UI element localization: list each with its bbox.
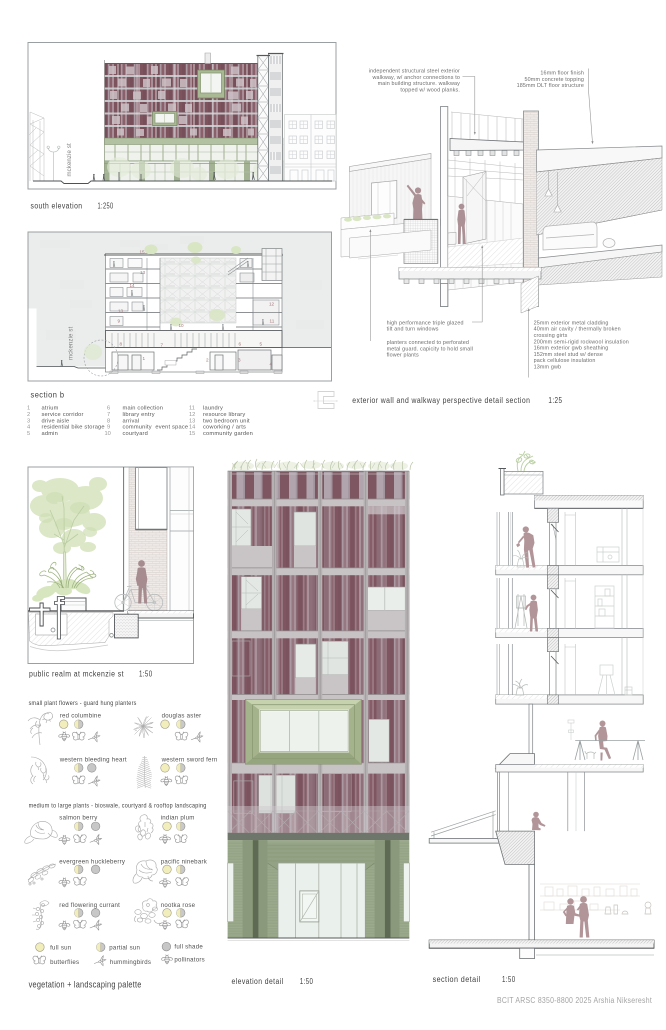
svg-text:185mm DLT floor structure: 185mm DLT floor structure (517, 83, 584, 89)
svg-text:14: 14 (130, 283, 136, 288)
svg-text:atrium: atrium (42, 406, 59, 412)
svg-text:section detail: section detail (433, 975, 481, 984)
svg-text:service corridor: service corridor (42, 412, 84, 418)
svg-text:douglas aster: douglas aster (162, 713, 202, 720)
svg-text:library entry: library entry (123, 412, 155, 418)
svg-text:16mm exterior gwb sheathing: 16mm exterior gwb sheathing (534, 346, 609, 352)
svg-text:small plant flowers - guard hu: small plant flowers - guard hung planter… (29, 700, 137, 707)
svg-text:partial sun: partial sun (109, 945, 140, 952)
svg-text:12: 12 (269, 302, 275, 307)
svg-text:11: 11 (270, 319, 275, 324)
svg-text:1:25: 1:25 (548, 396, 562, 405)
svg-text:red flowering currant: red flowering currant (59, 902, 120, 909)
svg-text:10: 10 (179, 323, 185, 328)
svg-text:3: 3 (27, 418, 30, 424)
svg-text:6: 6 (107, 406, 110, 412)
svg-text:16mm floor finish: 16mm floor finish (540, 71, 584, 77)
svg-text:1: 1 (27, 406, 30, 412)
svg-text:pollinators: pollinators (174, 957, 205, 964)
svg-text:main building structure. walkw: main building structure. walkway (378, 81, 461, 87)
svg-text:pack cellulose insulation: pack cellulose insulation (534, 358, 596, 364)
svg-text:resource library: resource library (203, 412, 245, 418)
svg-text:western sword fern: western sword fern (161, 757, 218, 764)
svg-text:mckenzie st: mckenzie st (67, 143, 73, 177)
svg-text:8: 8 (107, 418, 110, 424)
svg-text:7: 7 (107, 412, 110, 418)
svg-text:community event space: community event space (123, 425, 189, 431)
svg-text:evergreen huckleberry: evergreen huckleberry (59, 858, 126, 865)
svg-text:admin: admin (42, 431, 59, 437)
svg-text:section b: section b (31, 391, 65, 400)
svg-text:50mm concrete topping: 50mm concrete topping (525, 77, 584, 83)
svg-text:flower plants: flower plants (387, 353, 419, 359)
svg-text:public realm at mckenzie st: public realm at mckenzie st (29, 670, 124, 679)
svg-text:1:250: 1:250 (98, 202, 114, 211)
svg-text:butterflies: butterflies (50, 959, 79, 966)
svg-text:two bedroom unit: two bedroom unit (203, 418, 250, 424)
svg-text:13: 13 (189, 418, 195, 424)
svg-text:salmon berry: salmon berry (59, 815, 98, 822)
svg-text:13: 13 (118, 309, 124, 314)
svg-text:elevation detail: elevation detail (232, 977, 284, 986)
svg-text:13mm gwb: 13mm gwb (534, 365, 562, 371)
svg-text:4: 4 (27, 425, 30, 431)
svg-text:14: 14 (189, 425, 195, 431)
svg-text:high performance triple glazed: high performance triple glazed (387, 320, 464, 326)
svg-text:courtyard: courtyard (123, 431, 149, 437)
svg-text:pacific ninebark: pacific ninebark (161, 858, 208, 865)
svg-text:full shade: full shade (174, 943, 203, 950)
svg-text:25mm exterior metal cladding: 25mm exterior metal cladding (534, 320, 609, 326)
svg-text:2: 2 (27, 412, 30, 418)
svg-text:community garden: community garden (203, 431, 253, 437)
svg-text:200mm semi-rigid rockwool insu: 200mm semi-rigid rockwool insulation (534, 339, 629, 345)
svg-text:walkway, w/ anchor connections: walkway, w/ anchor connections to (371, 75, 460, 81)
svg-text:vegetation + landscaping palet: vegetation + landscaping palette (29, 980, 142, 991)
svg-text:15: 15 (189, 431, 195, 437)
svg-text:11: 11 (189, 406, 195, 412)
svg-text:4: 4 (270, 362, 273, 367)
svg-text:independent structural steel e: independent structural steel exterior (369, 69, 460, 75)
svg-text:tilt and turn windows: tilt and turn windows (387, 327, 439, 333)
svg-text:planters connected to perforat: planters connected to perforated (387, 340, 469, 346)
svg-text:full sun: full sun (50, 945, 71, 952)
svg-text:8: 8 (120, 342, 123, 347)
svg-text:3: 3 (238, 358, 241, 363)
svg-text:crossing girts: crossing girts (534, 333, 568, 339)
svg-text:residential bike storage: residential bike storage (42, 425, 105, 431)
svg-text:5: 5 (260, 342, 263, 347)
svg-text:nootka rose: nootka rose (161, 902, 196, 909)
svg-text:indian plum: indian plum (161, 815, 195, 822)
svg-text:medium to large plants - biosw: medium to large plants - bioswale, court… (29, 803, 207, 810)
svg-text:coworking / arts: coworking / arts (203, 425, 246, 431)
svg-text:drive aisle: drive aisle (42, 418, 70, 424)
svg-text:arrival: arrival (123, 418, 140, 424)
svg-text:metal guard. capicity to hold: metal guard. capicity to hold small (387, 346, 473, 352)
svg-text:12: 12 (189, 412, 195, 418)
svg-text:1:50: 1:50 (502, 975, 516, 984)
svg-text:laundry: laundry (203, 406, 223, 412)
svg-text:15: 15 (140, 250, 146, 255)
svg-text:topped w/ wood planks.: topped w/ wood planks. (400, 87, 460, 93)
svg-text:13: 13 (140, 270, 146, 275)
svg-text:9: 9 (118, 319, 121, 324)
svg-text:red columbine: red columbine (60, 713, 102, 720)
svg-text:BCIT ARSC 8350-8800 2025 Arshi: BCIT ARSC 8350-8800 2025 Arshia Nikseres… (497, 996, 652, 1005)
svg-text:hummingbirds: hummingbirds (110, 959, 151, 966)
svg-text:9: 9 (107, 425, 110, 431)
svg-text:10: 10 (105, 431, 111, 437)
svg-text:main collection: main collection (123, 406, 164, 412)
svg-text:western bleeding heart: western bleeding heart (59, 757, 127, 764)
svg-text:south elevation: south elevation (31, 202, 83, 211)
svg-text:1:50: 1:50 (139, 670, 153, 679)
svg-text:6: 6 (239, 342, 242, 347)
svg-text:1: 1 (143, 356, 146, 361)
svg-text:exterior wall and walkway pers: exterior wall and walkway perspective de… (352, 396, 530, 405)
svg-text:2: 2 (206, 358, 209, 363)
svg-text:152mm steel stud w/ dense: 152mm steel stud w/ dense (534, 352, 603, 358)
svg-text:1:50: 1:50 (300, 977, 314, 986)
svg-text:40mm air cavity / thermally br: 40mm air cavity / thermally broken (534, 327, 621, 333)
svg-text:mckenzie st: mckenzie st (69, 326, 75, 360)
svg-text:7: 7 (161, 343, 164, 348)
svg-text:5: 5 (27, 431, 30, 437)
